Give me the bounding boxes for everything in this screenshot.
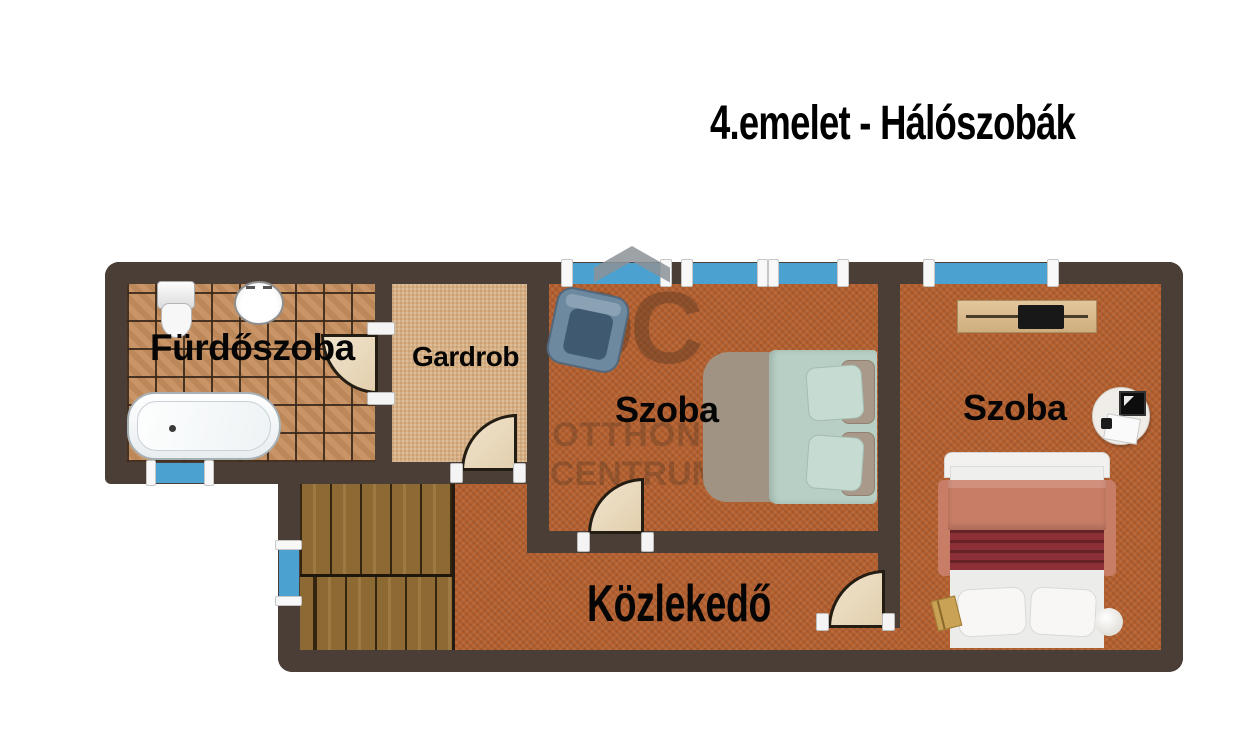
- window-frame: [1047, 259, 1059, 287]
- tv-console: [957, 300, 1097, 333]
- ball-lamp: [1095, 608, 1123, 636]
- window-frame: [757, 259, 768, 287]
- door-frame: [641, 532, 654, 552]
- wall-bottom: [278, 650, 1183, 672]
- room-label-bedroom-left: Szoba: [615, 389, 719, 431]
- wall-right: [1161, 262, 1183, 672]
- tv: [1018, 305, 1064, 329]
- window: [155, 463, 205, 483]
- page-title: 4.emelet - Hálószobák: [710, 96, 1075, 151]
- window-frame: [561, 259, 573, 287]
- door-frame: [882, 613, 895, 631]
- stairs-lower-flight: [300, 574, 452, 653]
- room-label-hallway: Közlekedő: [587, 574, 771, 634]
- wall-wardrobe-bedroom: [527, 284, 549, 553]
- window-frame: [275, 596, 302, 606]
- bathtub: [127, 392, 281, 460]
- window-frame: [837, 259, 849, 287]
- door-frame: [513, 463, 526, 483]
- door-frame: [367, 392, 395, 405]
- stairs-upper-flight: [300, 484, 452, 574]
- sink: [234, 281, 284, 325]
- window: [279, 549, 299, 597]
- staircase: [300, 484, 455, 650]
- room-label-bathroom: Fürdőszoba: [150, 327, 355, 369]
- door-frame: [816, 613, 829, 631]
- window: [779, 263, 837, 284]
- round-side-table: [1092, 387, 1150, 445]
- door-frame: [577, 532, 590, 552]
- window: [693, 263, 757, 284]
- window: [935, 263, 1047, 284]
- window-frame: [681, 259, 693, 287]
- door-frame: [450, 463, 463, 483]
- floor-plan-page: 4.emelet - Hálószobák OC OTTHON CENTRUM: [0, 0, 1260, 740]
- room-label-wardrobe: Gardrob: [412, 341, 519, 373]
- double-bed-left: [703, 350, 877, 504]
- room-label-bedroom-right: Szoba: [963, 387, 1067, 429]
- door-frame: [367, 322, 395, 335]
- double-bed-right: [942, 452, 1112, 649]
- window-frame: [768, 259, 779, 287]
- window-frame: [204, 460, 214, 486]
- window-frame: [923, 259, 935, 287]
- window-frame: [275, 540, 302, 550]
- wall-left-upper: [105, 262, 127, 484]
- picture-frame: [1119, 391, 1146, 416]
- wall-bedroom-left-bottom: [549, 531, 900, 553]
- window-frame: [146, 460, 156, 486]
